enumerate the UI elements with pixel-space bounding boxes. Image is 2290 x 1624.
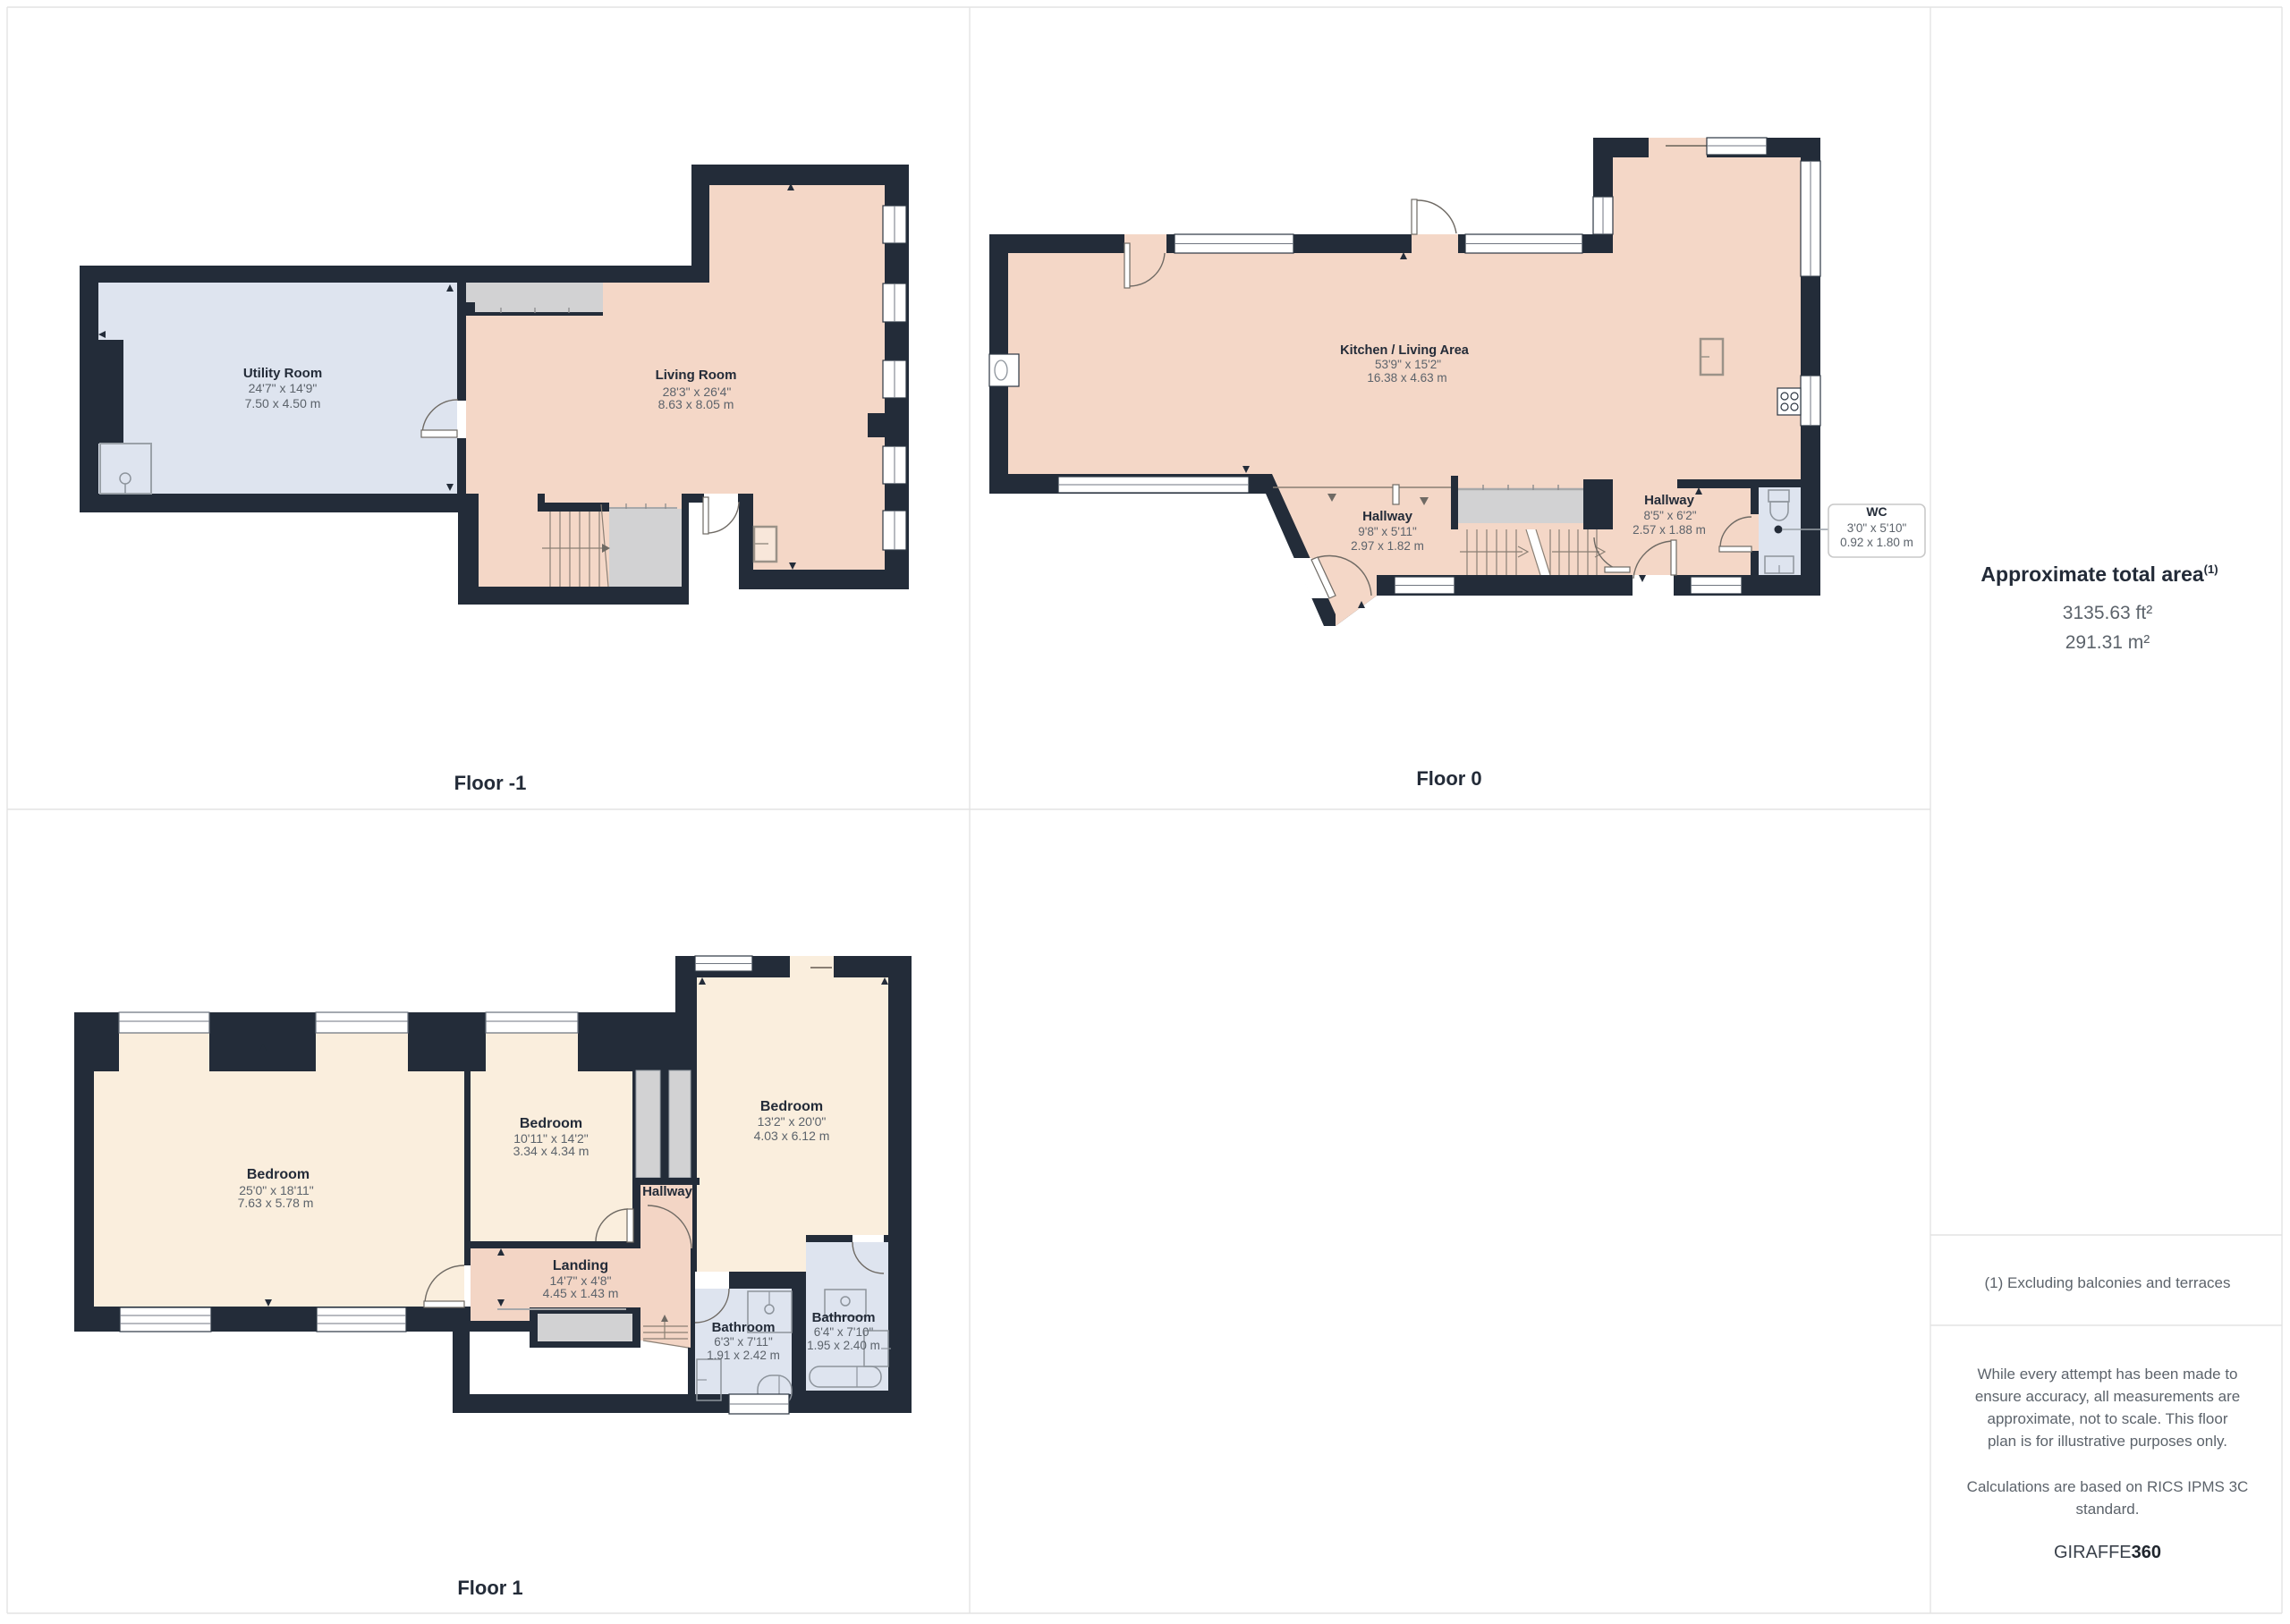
svg-text:3'0" x 5'10": 3'0" x 5'10"	[1847, 521, 1907, 535]
svg-text:6'4" x 7'10": 6'4" x 7'10"	[814, 1325, 874, 1339]
svg-text:GIRAFFE360: GIRAFFE360	[2054, 1543, 2161, 1562]
svg-text:24'7" x 14'9": 24'7" x 14'9"	[249, 381, 318, 395]
svg-text:Bedroom: Bedroom	[247, 1167, 310, 1182]
svg-text:Approximate total area(1): Approximate total area(1)	[1980, 562, 2218, 586]
svg-text:1.91 x 2.42 m: 1.91 x 2.42 m	[707, 1349, 780, 1362]
svg-text:WC: WC	[1866, 504, 1887, 519]
svg-text:53'9" x 15'2": 53'9" x 15'2"	[1375, 358, 1441, 371]
svg-text:Floor 0: Floor 0	[1416, 767, 1481, 790]
svg-text:Floor -1: Floor -1	[454, 772, 527, 794]
svg-text:Living Room: Living Room	[656, 368, 737, 383]
svg-text:ensure accuracy, all measureme: ensure accuracy, all measurements are	[1975, 1388, 2240, 1405]
svg-text:0.92 x 1.80 m: 0.92 x 1.80 m	[1840, 536, 1913, 549]
svg-text:Hallway: Hallway	[1644, 493, 1695, 508]
svg-text:Bedroom: Bedroom	[760, 1099, 823, 1114]
svg-text:291.31 m²: 291.31 m²	[2065, 632, 2150, 653]
svg-text:8'5" x 6'2": 8'5" x 6'2"	[1643, 509, 1696, 522]
svg-text:3.34 x 4.34 m: 3.34 x 4.34 m	[513, 1144, 589, 1158]
svg-text:4.45 x 1.43 m: 4.45 x 1.43 m	[543, 1286, 619, 1300]
svg-text:While every attempt has been m: While every attempt has been made to	[1977, 1366, 2237, 1383]
svg-text:1.95 x 2.40 m: 1.95 x 2.40 m	[807, 1339, 880, 1352]
svg-text:6'3" x 7'11": 6'3" x 7'11"	[714, 1335, 773, 1349]
svg-text:Bathroom: Bathroom	[712, 1320, 776, 1335]
svg-text:Bedroom: Bedroom	[520, 1116, 582, 1131]
svg-text:8.63 x 8.05 m: 8.63 x 8.05 m	[658, 397, 734, 411]
svg-text:Utility Room: Utility Room	[243, 366, 322, 381]
svg-text:standard.: standard.	[2076, 1501, 2140, 1518]
svg-text:Bathroom: Bathroom	[812, 1310, 876, 1325]
svg-text:Hallway: Hallway	[1362, 509, 1413, 524]
svg-text:4.03 x 6.12 m: 4.03 x 6.12 m	[754, 1129, 830, 1143]
svg-text:plan is for illustrative purpo: plan is for illustrative purposes only.	[1988, 1433, 2227, 1450]
svg-text:Calculations are based on RICS: Calculations are based on RICS IPMS 3C	[1967, 1478, 2249, 1495]
svg-text:approximate, not to scale. Thi: approximate, not to scale. This floor	[1988, 1410, 2228, 1427]
svg-text:9'8" x 5'11": 9'8" x 5'11"	[1358, 525, 1417, 538]
svg-text:Hallway: Hallway	[642, 1184, 693, 1199]
svg-text:13'2" x 20'0": 13'2" x 20'0"	[758, 1114, 827, 1129]
svg-text:3135.63 ft²: 3135.63 ft²	[2063, 603, 2152, 623]
svg-text:Floor 1: Floor 1	[457, 1577, 522, 1599]
svg-text:Kitchen / Living Area: Kitchen / Living Area	[1340, 343, 1470, 358]
svg-text:7.63 x 5.78 m: 7.63 x 5.78 m	[238, 1196, 314, 1210]
svg-text:2.97 x 1.82 m: 2.97 x 1.82 m	[1351, 539, 1424, 553]
svg-text:16.38 x 4.63 m: 16.38 x 4.63 m	[1367, 371, 1446, 385]
svg-text:(1) Excluding balconies and te: (1) Excluding balconies and terraces	[1985, 1274, 2231, 1291]
svg-text:Landing: Landing	[553, 1258, 608, 1273]
svg-text:7.50 x 4.50 m: 7.50 x 4.50 m	[245, 396, 321, 410]
svg-text:2.57 x 1.88 m: 2.57 x 1.88 m	[1633, 523, 1706, 537]
